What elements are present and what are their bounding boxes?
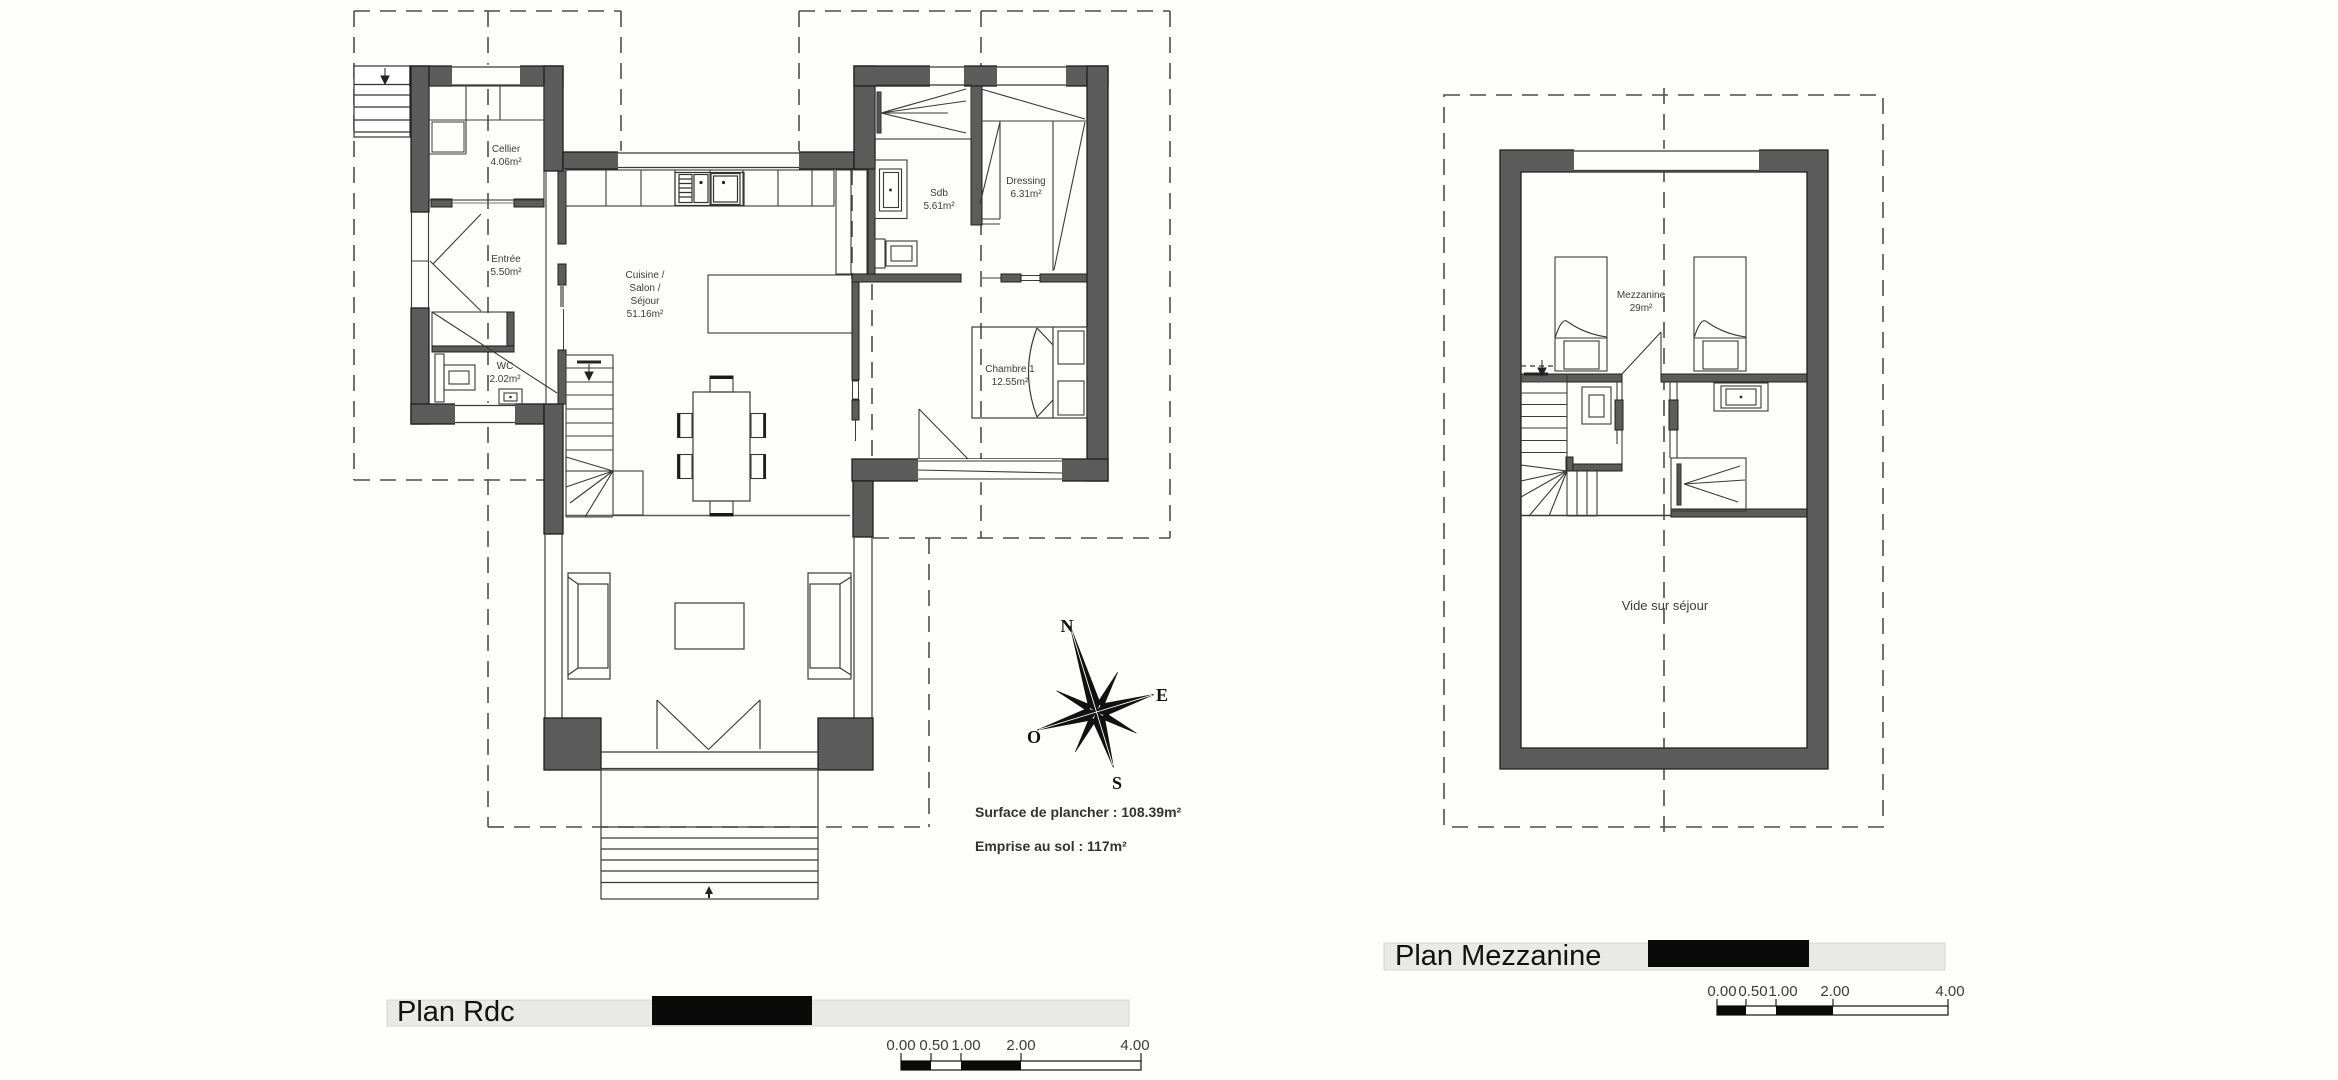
svg-text:29m²: 29m² xyxy=(1630,303,1653,314)
svg-text:4.00: 4.00 xyxy=(1120,1037,1149,1054)
svg-text:2.00: 2.00 xyxy=(1820,983,1849,1000)
svg-text:N: N xyxy=(1061,616,1074,636)
svg-text:6.31m²: 6.31m² xyxy=(1010,189,1042,200)
svg-text:S: S xyxy=(1112,773,1122,793)
svg-text:Vide sur séjour: Vide sur séjour xyxy=(1622,598,1709,613)
svg-text:Séjour: Séjour xyxy=(631,296,661,307)
svg-text:Sdb: Sdb xyxy=(930,188,948,199)
svg-text:1.00: 1.00 xyxy=(1768,983,1797,1000)
svg-text:5.50m²: 5.50m² xyxy=(490,267,522,278)
svg-text:5.61m²: 5.61m² xyxy=(923,201,955,212)
svg-text:1.00: 1.00 xyxy=(951,1037,980,1054)
svg-text:Plan Mezzanine: Plan Mezzanine xyxy=(1395,940,1601,972)
svg-text:Entrée: Entrée xyxy=(491,254,521,265)
svg-text:Mezzanine: Mezzanine xyxy=(1617,290,1666,301)
svg-text:Surface de plancher : 108.39m²: Surface de plancher : 108.39m² xyxy=(975,804,1182,820)
svg-text:Salon /: Salon / xyxy=(629,283,660,294)
svg-text:Dressing: Dressing xyxy=(1006,176,1045,187)
svg-text:Cuisine /: Cuisine / xyxy=(626,270,665,281)
svg-text:2.02m²: 2.02m² xyxy=(489,374,521,385)
svg-text:0.00: 0.00 xyxy=(1707,983,1736,1000)
svg-text:2.00: 2.00 xyxy=(1006,1037,1035,1054)
svg-text:Emprise au sol : 117m²: Emprise au sol : 117m² xyxy=(975,838,1127,854)
svg-text:4.06m²: 4.06m² xyxy=(490,157,522,168)
svg-text:E: E xyxy=(1156,685,1168,705)
svg-text:12.55m²: 12.55m² xyxy=(992,377,1029,388)
svg-text:51.16m²: 51.16m² xyxy=(627,309,664,320)
svg-text:Chambre 1: Chambre 1 xyxy=(985,364,1035,375)
svg-text:0.00: 0.00 xyxy=(886,1037,915,1054)
svg-text:WC: WC xyxy=(497,361,514,372)
svg-text:Cellier: Cellier xyxy=(492,144,521,155)
svg-text:O: O xyxy=(1027,727,1041,747)
svg-text:0.50: 0.50 xyxy=(1738,983,1767,1000)
svg-text:0.50: 0.50 xyxy=(919,1037,948,1054)
svg-text:4.00: 4.00 xyxy=(1935,983,1964,1000)
svg-text:Plan Rdc: Plan Rdc xyxy=(397,996,515,1028)
